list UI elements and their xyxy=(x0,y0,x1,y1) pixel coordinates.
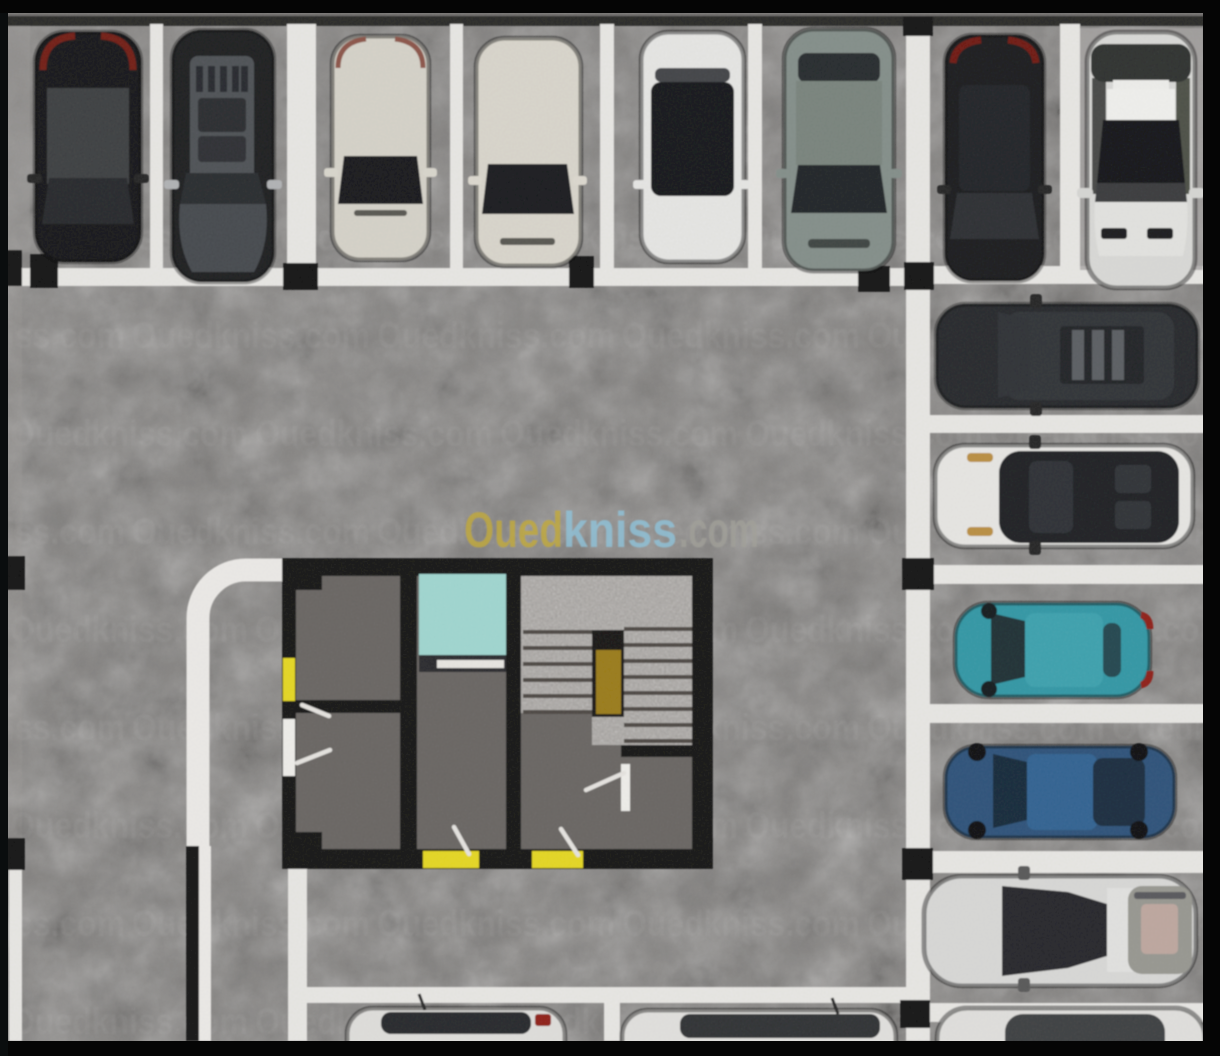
svg-text:Oued: Oued xyxy=(464,502,563,558)
svg-text:kniss: kniss xyxy=(563,502,677,558)
svg-text:.com: .com xyxy=(679,502,759,558)
